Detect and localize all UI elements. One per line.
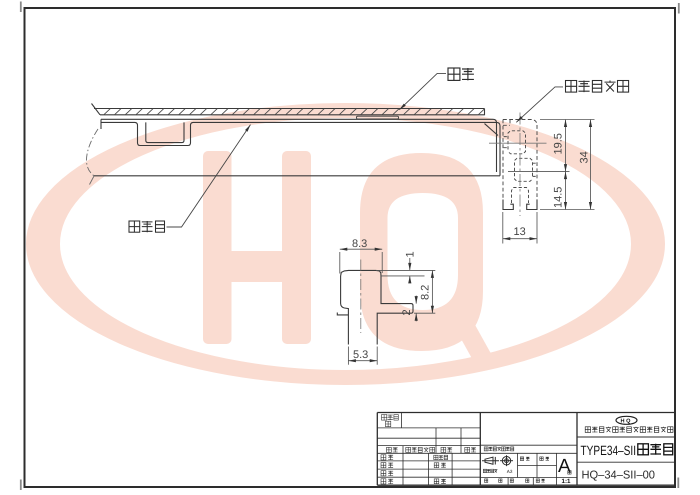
- svg-text:1: 1: [405, 251, 417, 257]
- svg-text:TYPE34–SII: TYPE34–SII: [581, 443, 637, 458]
- svg-text:8.3: 8.3: [352, 238, 367, 250]
- svg-text:13: 13: [514, 226, 526, 238]
- svg-text:1:1: 1:1: [562, 478, 572, 485]
- svg-text:14.5: 14.5: [553, 187, 565, 208]
- svg-text:A3: A3: [507, 469, 513, 474]
- svg-text:5.3: 5.3: [353, 349, 368, 361]
- svg-text:HQ–34–SII–00: HQ–34–SII–00: [582, 470, 656, 482]
- svg-text:2: 2: [401, 309, 413, 315]
- svg-text:8.2: 8.2: [420, 285, 432, 300]
- svg-text:34: 34: [579, 151, 591, 163]
- svg-text:19.5: 19.5: [553, 133, 565, 154]
- svg-text:H Q: H Q: [621, 419, 632, 425]
